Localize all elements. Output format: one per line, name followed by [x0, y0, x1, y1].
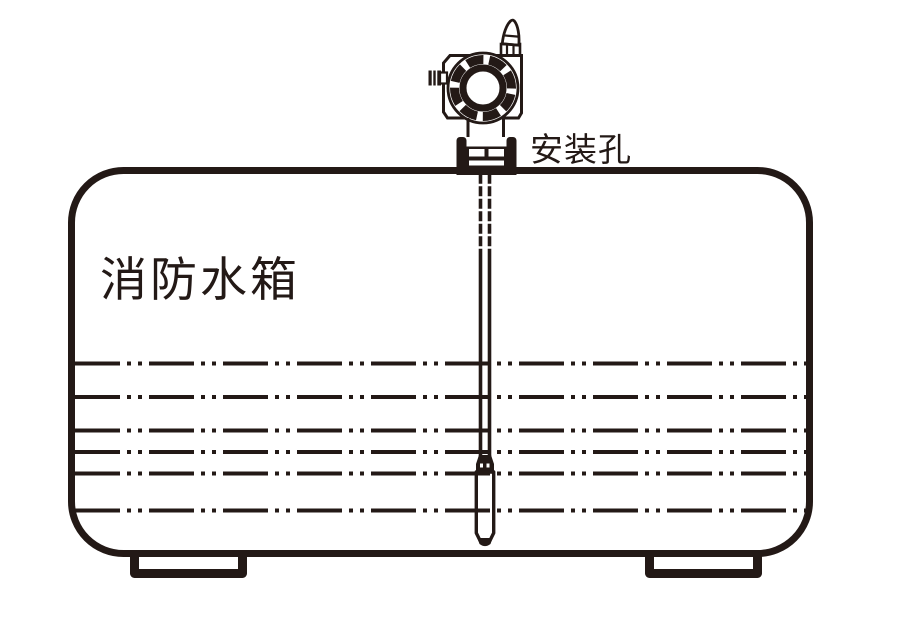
connector-detail — [487, 464, 490, 468]
display-window — [463, 68, 503, 108]
mounting-hole-label: 安装孔 — [530, 131, 632, 168]
tank-level-sensor-diagram: 消防水箱 安装孔 — [0, 0, 899, 623]
cable-gland-icon — [429, 71, 448, 86]
mounting-fitting-icon — [457, 137, 517, 175]
level-transmitter-head — [429, 19, 522, 175]
wireless-antenna-icon — [502, 19, 521, 45]
diagram-canvas: 消防水箱 安装孔 — [0, 0, 899, 623]
cable-connector — [476, 455, 494, 472]
transmitter-bezel — [448, 53, 518, 123]
tank-label: 消防水箱 — [100, 253, 300, 306]
connector-detail — [480, 464, 483, 468]
